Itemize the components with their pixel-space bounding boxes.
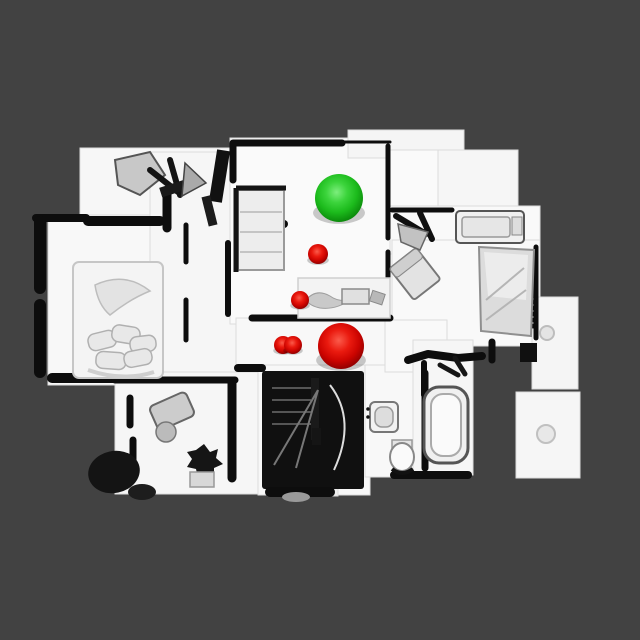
floor-top-right-slab [428, 150, 518, 212]
red-sphere[interactable] [318, 323, 364, 369]
bed-left [73, 262, 163, 378]
bathtub-basin [431, 394, 461, 456]
bench-arm [512, 217, 522, 235]
sink-basin [375, 407, 393, 427]
bed-right [479, 247, 534, 336]
sink-knob-2 [366, 415, 370, 419]
green-sphere[interactable] [315, 174, 363, 222]
stool-blob [156, 422, 176, 442]
wall-block-right [520, 343, 537, 362]
floor-right-extension [532, 297, 578, 389]
knob-right-extension [540, 326, 554, 340]
bench-top-right [456, 211, 524, 243]
stair-post [312, 428, 321, 445]
scan-viewport[interactable] [0, 0, 640, 640]
bench-cushion [462, 217, 510, 237]
noise-bottom-left-mass-2 [128, 484, 156, 500]
sink [366, 402, 398, 432]
red-sphere[interactable] [291, 291, 309, 309]
bathtub [424, 387, 468, 463]
dresser [236, 188, 286, 272]
sink-knob-1 [366, 407, 370, 411]
stair-shadow-tuft [282, 492, 310, 502]
plant-pot [190, 472, 214, 487]
knob-bottom-right [537, 425, 555, 443]
laptop [342, 289, 369, 304]
red-sphere[interactable] [284, 336, 302, 354]
toilet-bowl [390, 443, 414, 471]
red-sphere[interactable] [308, 244, 328, 264]
toilet [390, 440, 414, 473]
floor-plan-canvas [0, 0, 640, 640]
wall-right-mid-h [408, 354, 482, 360]
bed-center [298, 278, 390, 318]
dresser-body [238, 190, 284, 270]
